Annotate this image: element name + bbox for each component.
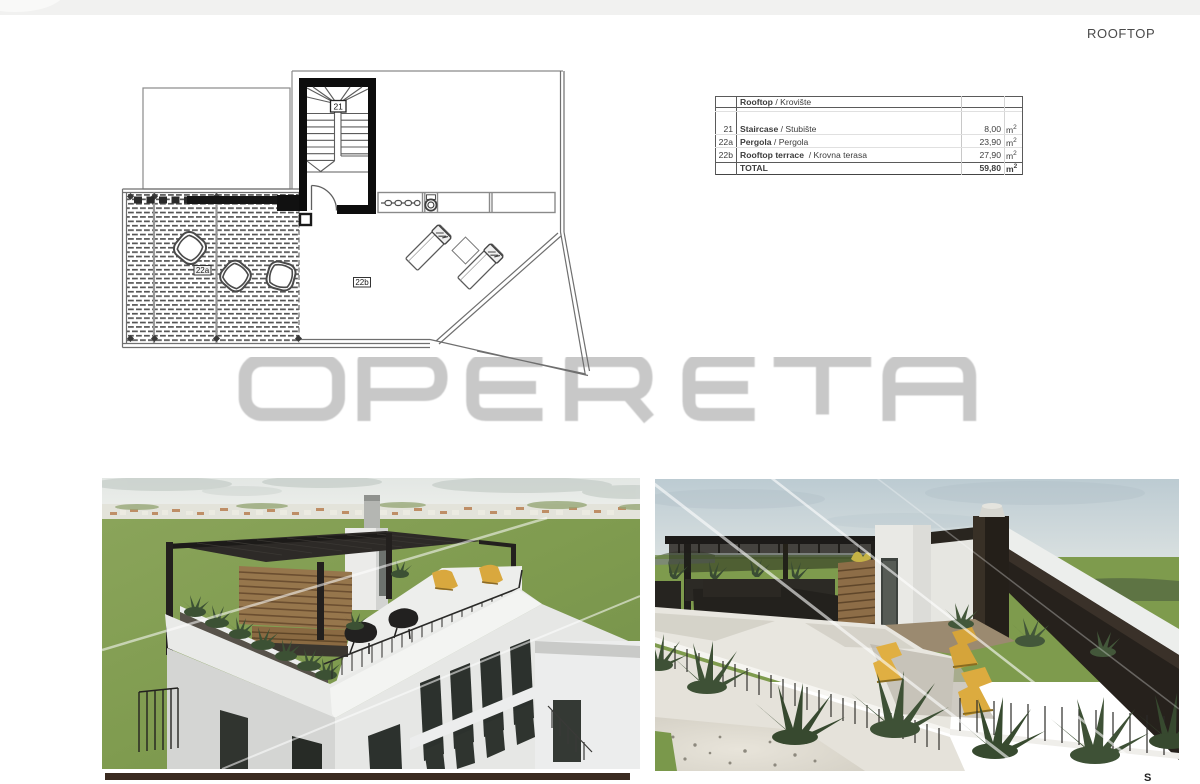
svg-text:21: 21 bbox=[333, 102, 343, 112]
svg-text:22a: 22a bbox=[196, 266, 210, 275]
svg-text:22b: 22b bbox=[355, 278, 369, 287]
